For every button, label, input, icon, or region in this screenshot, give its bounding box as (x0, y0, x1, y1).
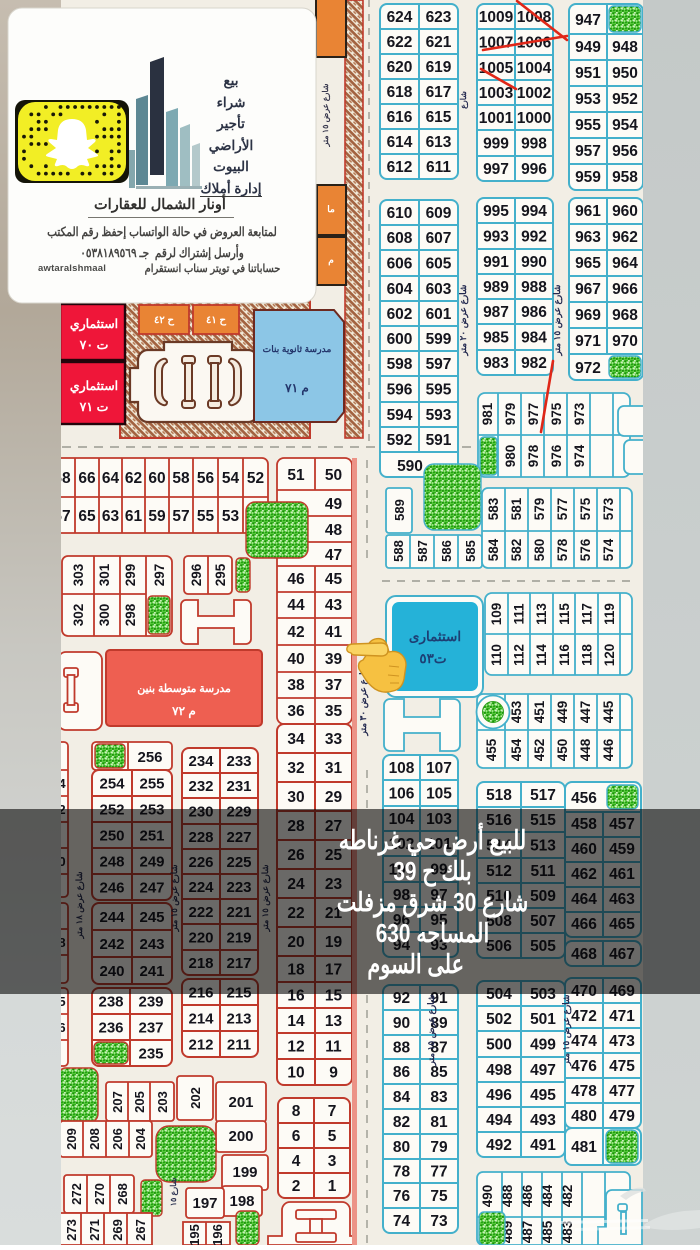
svg-text:576: 576 (578, 538, 593, 561)
svg-text:شارع عرض ١٥ متر: شارع عرض ١٥ متر (321, 83, 331, 147)
svg-text:38: 38 (287, 677, 305, 694)
svg-text:56: 56 (197, 470, 215, 487)
svg-text:475: 475 (609, 1058, 635, 1075)
svg-text:466: 466 (571, 916, 597, 933)
svg-text:42: 42 (287, 624, 304, 641)
svg-text:256: 256 (137, 749, 162, 766)
svg-text:17: 17 (325, 962, 342, 979)
svg-text:119: 119 (602, 603, 617, 625)
svg-text:955: 955 (575, 117, 601, 134)
svg-text:202: 202 (188, 1087, 203, 1109)
svg-text:297: 297 (152, 564, 167, 587)
svg-text:235: 235 (138, 1045, 163, 1062)
svg-text:959: 959 (575, 169, 601, 186)
svg-text:1001: 1001 (479, 110, 514, 127)
svg-text:1003: 1003 (479, 85, 514, 102)
svg-text:962: 962 (612, 229, 638, 246)
svg-text:498: 498 (486, 1062, 512, 1079)
svg-text:مدرسة متوسطة بنين: مدرسة متوسطة بنين (137, 683, 231, 695)
svg-text:29: 29 (325, 789, 343, 806)
svg-text:614: 614 (387, 134, 413, 151)
svg-text:228: 228 (188, 829, 213, 846)
svg-text:114: 114 (534, 644, 549, 666)
svg-text:11: 11 (325, 1039, 342, 1056)
svg-text:450: 450 (555, 739, 570, 762)
svg-text:621: 621 (426, 34, 452, 51)
svg-text:233: 233 (226, 753, 251, 770)
svg-text:200: 200 (228, 1128, 253, 1145)
svg-text:40: 40 (287, 651, 304, 668)
svg-text:215: 215 (226, 984, 251, 1001)
svg-text:شارع عرض ١٥ متر: شارع عرض ١٥ متر (260, 865, 271, 933)
svg-text:623: 623 (426, 9, 452, 26)
svg-text:509: 509 (530, 888, 556, 905)
svg-text:270: 270 (92, 1183, 107, 1205)
svg-text:203: 203 (155, 1091, 170, 1113)
svg-text:211: 211 (227, 1036, 251, 1053)
svg-text:515: 515 (530, 812, 556, 829)
svg-text:226: 226 (188, 854, 213, 871)
svg-text:469: 469 (609, 983, 635, 1000)
svg-text:488: 488 (500, 1184, 515, 1207)
svg-text:580: 580 (532, 539, 547, 562)
svg-text:492: 492 (486, 1137, 512, 1154)
svg-text:18: 18 (287, 962, 305, 979)
svg-text:461: 461 (609, 866, 635, 883)
svg-text:594: 594 (387, 407, 413, 424)
svg-text:995: 995 (483, 203, 509, 220)
svg-text:961: 961 (575, 203, 601, 220)
svg-text:510: 510 (486, 888, 512, 905)
svg-text:957: 957 (575, 143, 601, 160)
svg-text:234: 234 (188, 753, 214, 770)
svg-text:610: 610 (387, 205, 413, 222)
svg-text:485: 485 (540, 1220, 555, 1243)
svg-text:493: 493 (530, 1112, 556, 1129)
svg-text:968: 968 (612, 307, 638, 324)
svg-text:966: 966 (612, 281, 638, 298)
svg-text:963: 963 (575, 229, 601, 246)
svg-text:609: 609 (426, 205, 452, 222)
svg-text:479: 479 (609, 1108, 635, 1125)
svg-text:214: 214 (188, 1010, 214, 1027)
svg-text:5: 5 (328, 1128, 337, 1145)
svg-text:66: 66 (78, 470, 96, 487)
svg-text:998: 998 (521, 136, 547, 153)
svg-text:231: 231 (226, 778, 251, 795)
svg-text:975: 975 (549, 402, 564, 425)
svg-text:85: 85 (430, 1064, 448, 1081)
svg-text:484: 484 (540, 1184, 555, 1207)
svg-text:196: 196 (210, 1224, 225, 1245)
svg-text:298: 298 (123, 603, 138, 626)
svg-text:106: 106 (389, 786, 415, 803)
svg-text:209: 209 (64, 1128, 79, 1150)
svg-text:974: 974 (572, 444, 587, 467)
svg-text:105: 105 (426, 786, 452, 803)
svg-text:78: 78 (393, 1164, 411, 1181)
svg-text:989: 989 (483, 279, 509, 296)
svg-text:54: 54 (222, 470, 240, 487)
svg-text:88: 88 (393, 1040, 411, 1057)
svg-text:458: 458 (571, 816, 597, 833)
svg-text:9: 9 (329, 1065, 338, 1082)
svg-text:استثماري: استثماري (70, 317, 118, 332)
svg-text:447: 447 (578, 701, 593, 724)
svg-text:455: 455 (484, 738, 499, 761)
svg-text:ح ٤٢: ح ٤٢ (154, 315, 175, 326)
svg-text:ت ٧٠: ت ٧٠ (79, 338, 109, 352)
svg-text:972: 972 (575, 360, 601, 377)
svg-text:512: 512 (486, 863, 512, 880)
svg-text:582: 582 (509, 539, 524, 562)
svg-text:513: 513 (530, 838, 556, 855)
svg-text:983: 983 (483, 355, 509, 372)
svg-text:973: 973 (572, 402, 587, 425)
svg-text:86: 86 (393, 1064, 411, 1081)
svg-text:استثمارى: استثمارى (409, 629, 461, 645)
svg-text:248: 248 (99, 853, 124, 870)
svg-text:600: 600 (387, 331, 413, 348)
svg-text:115: 115 (557, 603, 572, 625)
svg-text:51: 51 (287, 467, 305, 484)
svg-text:578: 578 (555, 538, 570, 561)
svg-text:216: 216 (188, 984, 213, 1001)
svg-text:947: 947 (575, 12, 601, 29)
svg-text:604: 604 (387, 281, 413, 298)
svg-text:505: 505 (530, 938, 556, 955)
svg-text:شارع عرض ١٥ متر: شارع عرض ١٥ متر (426, 995, 437, 1067)
svg-text:514: 514 (486, 838, 512, 855)
svg-text:471: 471 (609, 1008, 635, 1025)
svg-text:41: 41 (325, 624, 343, 641)
svg-text:104: 104 (389, 811, 415, 828)
svg-text:2: 2 (292, 1178, 301, 1195)
svg-text:494: 494 (486, 1112, 512, 1129)
svg-text:96: 96 (393, 912, 411, 929)
svg-text:208: 208 (87, 1128, 102, 1150)
svg-text:62: 62 (125, 470, 142, 487)
svg-text:984: 984 (521, 330, 547, 347)
svg-text:584: 584 (486, 538, 501, 561)
svg-text:8: 8 (292, 1103, 301, 1120)
svg-text:21: 21 (325, 905, 343, 922)
svg-text:60: 60 (148, 470, 165, 487)
svg-text:75: 75 (430, 1188, 448, 1205)
svg-text:986: 986 (521, 304, 547, 321)
svg-text:22: 22 (287, 905, 304, 922)
svg-text:470: 470 (571, 983, 597, 1000)
svg-text:464: 464 (571, 891, 597, 908)
svg-text:48: 48 (325, 522, 343, 539)
svg-text:94: 94 (393, 937, 411, 954)
svg-text:34: 34 (287, 731, 305, 748)
svg-text:53: 53 (222, 508, 240, 525)
svg-text:58: 58 (172, 470, 190, 487)
svg-text:301: 301 (97, 563, 112, 586)
svg-text:481: 481 (571, 1139, 597, 1156)
svg-text:969: 969 (575, 307, 601, 324)
svg-text:118: 118 (579, 644, 594, 666)
svg-text:35: 35 (325, 703, 343, 720)
svg-text:624: 624 (387, 9, 413, 26)
svg-text:473: 473 (609, 1033, 635, 1050)
svg-text:596: 596 (387, 382, 413, 399)
svg-text:112: 112 (512, 644, 527, 666)
svg-text:587: 587 (415, 540, 430, 562)
svg-text:477: 477 (609, 1083, 635, 1100)
svg-text:24: 24 (287, 876, 305, 893)
svg-text:19: 19 (325, 934, 343, 951)
svg-text:39: 39 (325, 651, 343, 668)
svg-text:495: 495 (530, 1087, 556, 1104)
svg-text:456: 456 (571, 790, 597, 807)
svg-text:م ٧٢: م ٧٢ (171, 704, 196, 719)
svg-text:577: 577 (555, 498, 570, 521)
svg-text:25: 25 (325, 847, 343, 864)
svg-text:255: 255 (139, 775, 164, 792)
svg-text:616: 616 (387, 109, 413, 126)
svg-text:10: 10 (287, 1065, 304, 1082)
svg-text:13: 13 (325, 1013, 343, 1030)
svg-text:988: 988 (521, 279, 547, 296)
svg-text:518: 518 (486, 787, 512, 804)
svg-text:74: 74 (393, 1213, 411, 1230)
svg-text:970: 970 (612, 333, 638, 350)
svg-text:102: 102 (389, 836, 415, 853)
svg-text:شارع عرض ١٥ متر: شارع عرض ١٥ متر (561, 995, 572, 1067)
svg-text:63: 63 (102, 508, 120, 525)
svg-text:120: 120 (602, 644, 617, 667)
svg-text:220: 220 (188, 929, 213, 946)
svg-text:999: 999 (483, 136, 509, 153)
svg-text:486: 486 (520, 1184, 535, 1207)
svg-text:462: 462 (571, 866, 597, 883)
svg-text:49: 49 (325, 496, 343, 513)
svg-text:499: 499 (530, 1037, 556, 1054)
svg-text:960: 960 (612, 203, 638, 220)
svg-text:990: 990 (521, 254, 547, 271)
svg-text:117: 117 (579, 603, 594, 625)
svg-text:478: 478 (571, 1083, 597, 1100)
svg-text:206: 206 (110, 1128, 125, 1150)
svg-text:230: 230 (188, 803, 213, 820)
svg-text:مدرسة ثانوية بنات: مدرسة ثانوية بنات (263, 344, 332, 355)
svg-text:956: 956 (612, 143, 638, 160)
svg-text:33: 33 (325, 731, 343, 748)
svg-text:ما: ما (327, 204, 335, 214)
svg-text:950: 950 (612, 65, 638, 82)
svg-text:شارع عرض ٢٠ متر: شارع عرض ٢٠ متر (458, 285, 469, 357)
svg-text:476: 476 (571, 1058, 597, 1075)
svg-text:12: 12 (287, 1039, 304, 1056)
svg-text:501: 501 (530, 1011, 556, 1028)
svg-text:52: 52 (247, 470, 264, 487)
svg-text:204: 204 (133, 1127, 148, 1149)
svg-text:511: 511 (530, 863, 555, 880)
svg-text:300: 300 (97, 604, 112, 627)
svg-text:55: 55 (197, 508, 215, 525)
svg-text:ت ٧١: ت ٧١ (79, 400, 109, 414)
svg-text:76: 76 (393, 1188, 411, 1205)
svg-text:268: 268 (115, 1183, 130, 1205)
svg-text:43: 43 (325, 597, 343, 614)
svg-text:618: 618 (387, 84, 413, 101)
svg-text:976: 976 (549, 444, 564, 467)
svg-text:61: 61 (125, 508, 143, 525)
svg-text:26: 26 (287, 847, 305, 864)
svg-text:465: 465 (609, 916, 635, 933)
svg-text:242: 242 (99, 936, 124, 953)
svg-text:516: 516 (486, 812, 512, 829)
svg-text:195: 195 (187, 1224, 202, 1245)
svg-text:589: 589 (392, 499, 407, 521)
svg-text:80: 80 (393, 1139, 410, 1156)
svg-text:605: 605 (426, 256, 452, 273)
svg-text:496: 496 (486, 1087, 512, 1104)
svg-text:581: 581 (509, 497, 524, 520)
svg-text:199: 199 (232, 1164, 257, 1181)
svg-text:619: 619 (426, 59, 452, 76)
svg-text:20: 20 (287, 934, 304, 951)
svg-text:991: 991 (483, 254, 509, 271)
svg-text:617: 617 (426, 84, 452, 101)
svg-text:951: 951 (575, 65, 601, 82)
svg-text:207: 207 (110, 1091, 125, 1113)
svg-text:ح ٤١: ح ٤١ (206, 315, 227, 326)
svg-text:579: 579 (532, 498, 547, 521)
svg-text:468: 468 (571, 946, 597, 963)
svg-text:شارع ١٥: شارع ١٥ (169, 1177, 179, 1206)
svg-text:981: 981 (480, 402, 495, 425)
svg-text:شارع عرض ١٨ متر: شارع عرض ١٨ متر (74, 872, 85, 940)
svg-text:948: 948 (612, 39, 638, 56)
svg-text:110: 110 (489, 644, 504, 666)
svg-text:996: 996 (521, 161, 547, 178)
svg-text:15: 15 (325, 988, 343, 1005)
svg-text:240: 240 (99, 963, 124, 980)
svg-text:شارع عرض ١٥ متر: شارع عرض ١٥ متر (552, 285, 563, 357)
svg-text:586: 586 (439, 540, 454, 562)
svg-text:95: 95 (430, 912, 448, 929)
svg-text:64: 64 (102, 470, 120, 487)
svg-text:1: 1 (328, 1178, 337, 1195)
svg-text:997: 997 (483, 161, 509, 178)
svg-text:593: 593 (426, 407, 452, 424)
svg-text:232: 232 (188, 778, 213, 795)
svg-text:205: 205 (132, 1091, 147, 1113)
svg-text:271: 271 (87, 1219, 102, 1241)
svg-text:474: 474 (571, 1033, 597, 1050)
svg-text:490: 490 (480, 1185, 495, 1208)
svg-text:599: 599 (426, 331, 452, 348)
svg-text:استثماري: استثماري (70, 379, 118, 394)
svg-text:100: 100 (389, 862, 415, 879)
svg-text:92: 92 (393, 990, 410, 1007)
svg-text:1004: 1004 (517, 60, 552, 77)
svg-text:949: 949 (575, 39, 601, 56)
svg-text:982: 982 (521, 355, 547, 372)
svg-text:620: 620 (387, 59, 413, 76)
svg-text:97: 97 (430, 887, 447, 904)
svg-text:472: 472 (571, 1008, 597, 1025)
svg-text:454: 454 (509, 738, 524, 761)
svg-text:269: 269 (110, 1219, 125, 1241)
svg-text:967: 967 (575, 281, 601, 298)
svg-text:107: 107 (426, 760, 452, 777)
svg-text:993: 993 (483, 229, 509, 246)
svg-text:597: 597 (426, 356, 452, 373)
svg-text:م ٧١: م ٧١ (284, 381, 309, 396)
svg-text:987: 987 (483, 304, 509, 321)
svg-text:37: 37 (325, 677, 342, 694)
svg-text:116: 116 (557, 644, 572, 666)
svg-text:448: 448 (578, 738, 593, 761)
svg-text:446: 446 (601, 738, 616, 761)
svg-text:299: 299 (123, 564, 138, 587)
svg-text:517: 517 (530, 787, 556, 804)
svg-text:622: 622 (387, 34, 413, 51)
svg-text:23: 23 (325, 876, 343, 893)
svg-text:245: 245 (139, 909, 164, 926)
svg-text:213: 213 (226, 1010, 251, 1027)
svg-text:198: 198 (229, 1193, 254, 1210)
svg-text:979: 979 (503, 403, 518, 426)
svg-text:16: 16 (287, 988, 305, 1005)
svg-text:59: 59 (148, 508, 166, 525)
svg-text:31: 31 (325, 760, 343, 777)
svg-text:592: 592 (387, 432, 413, 449)
svg-text:459: 459 (609, 841, 635, 858)
svg-text:212: 212 (188, 1036, 213, 1053)
svg-text:467: 467 (609, 946, 635, 963)
svg-text:73: 73 (430, 1213, 448, 1230)
svg-text:247: 247 (139, 879, 164, 896)
svg-text:224: 224 (188, 879, 214, 896)
svg-text:57: 57 (172, 508, 189, 525)
svg-text:109: 109 (489, 603, 504, 626)
svg-text:954: 954 (612, 117, 638, 134)
svg-text:ت٥٣: ت٥٣ (419, 651, 447, 666)
svg-text:79: 79 (430, 1139, 448, 1156)
svg-text:588: 588 (391, 540, 406, 562)
svg-text:30: 30 (287, 789, 304, 806)
svg-text:601: 601 (426, 306, 452, 323)
svg-text:1000: 1000 (517, 110, 551, 127)
svg-text:591: 591 (426, 432, 452, 449)
svg-text:613: 613 (426, 134, 452, 151)
svg-text:504: 504 (486, 986, 512, 1003)
svg-text:452: 452 (532, 739, 547, 762)
svg-text:14: 14 (287, 1013, 305, 1030)
svg-text:225: 225 (226, 854, 251, 871)
svg-text:44: 44 (287, 597, 305, 614)
svg-text:83: 83 (430, 1089, 448, 1106)
svg-text:487: 487 (520, 1221, 535, 1244)
svg-text:103: 103 (426, 811, 452, 828)
svg-text:251: 251 (139, 827, 164, 844)
svg-text:295: 295 (213, 563, 228, 586)
svg-text:99: 99 (430, 862, 448, 879)
svg-text:239: 239 (138, 993, 163, 1010)
svg-text:992: 992 (521, 229, 547, 246)
svg-text:491: 491 (530, 1137, 556, 1154)
svg-text:222: 222 (188, 904, 213, 921)
svg-text:108: 108 (389, 760, 415, 777)
svg-text:603: 603 (426, 281, 452, 298)
svg-text:457: 457 (609, 816, 635, 833)
svg-text:81: 81 (430, 1114, 448, 1131)
